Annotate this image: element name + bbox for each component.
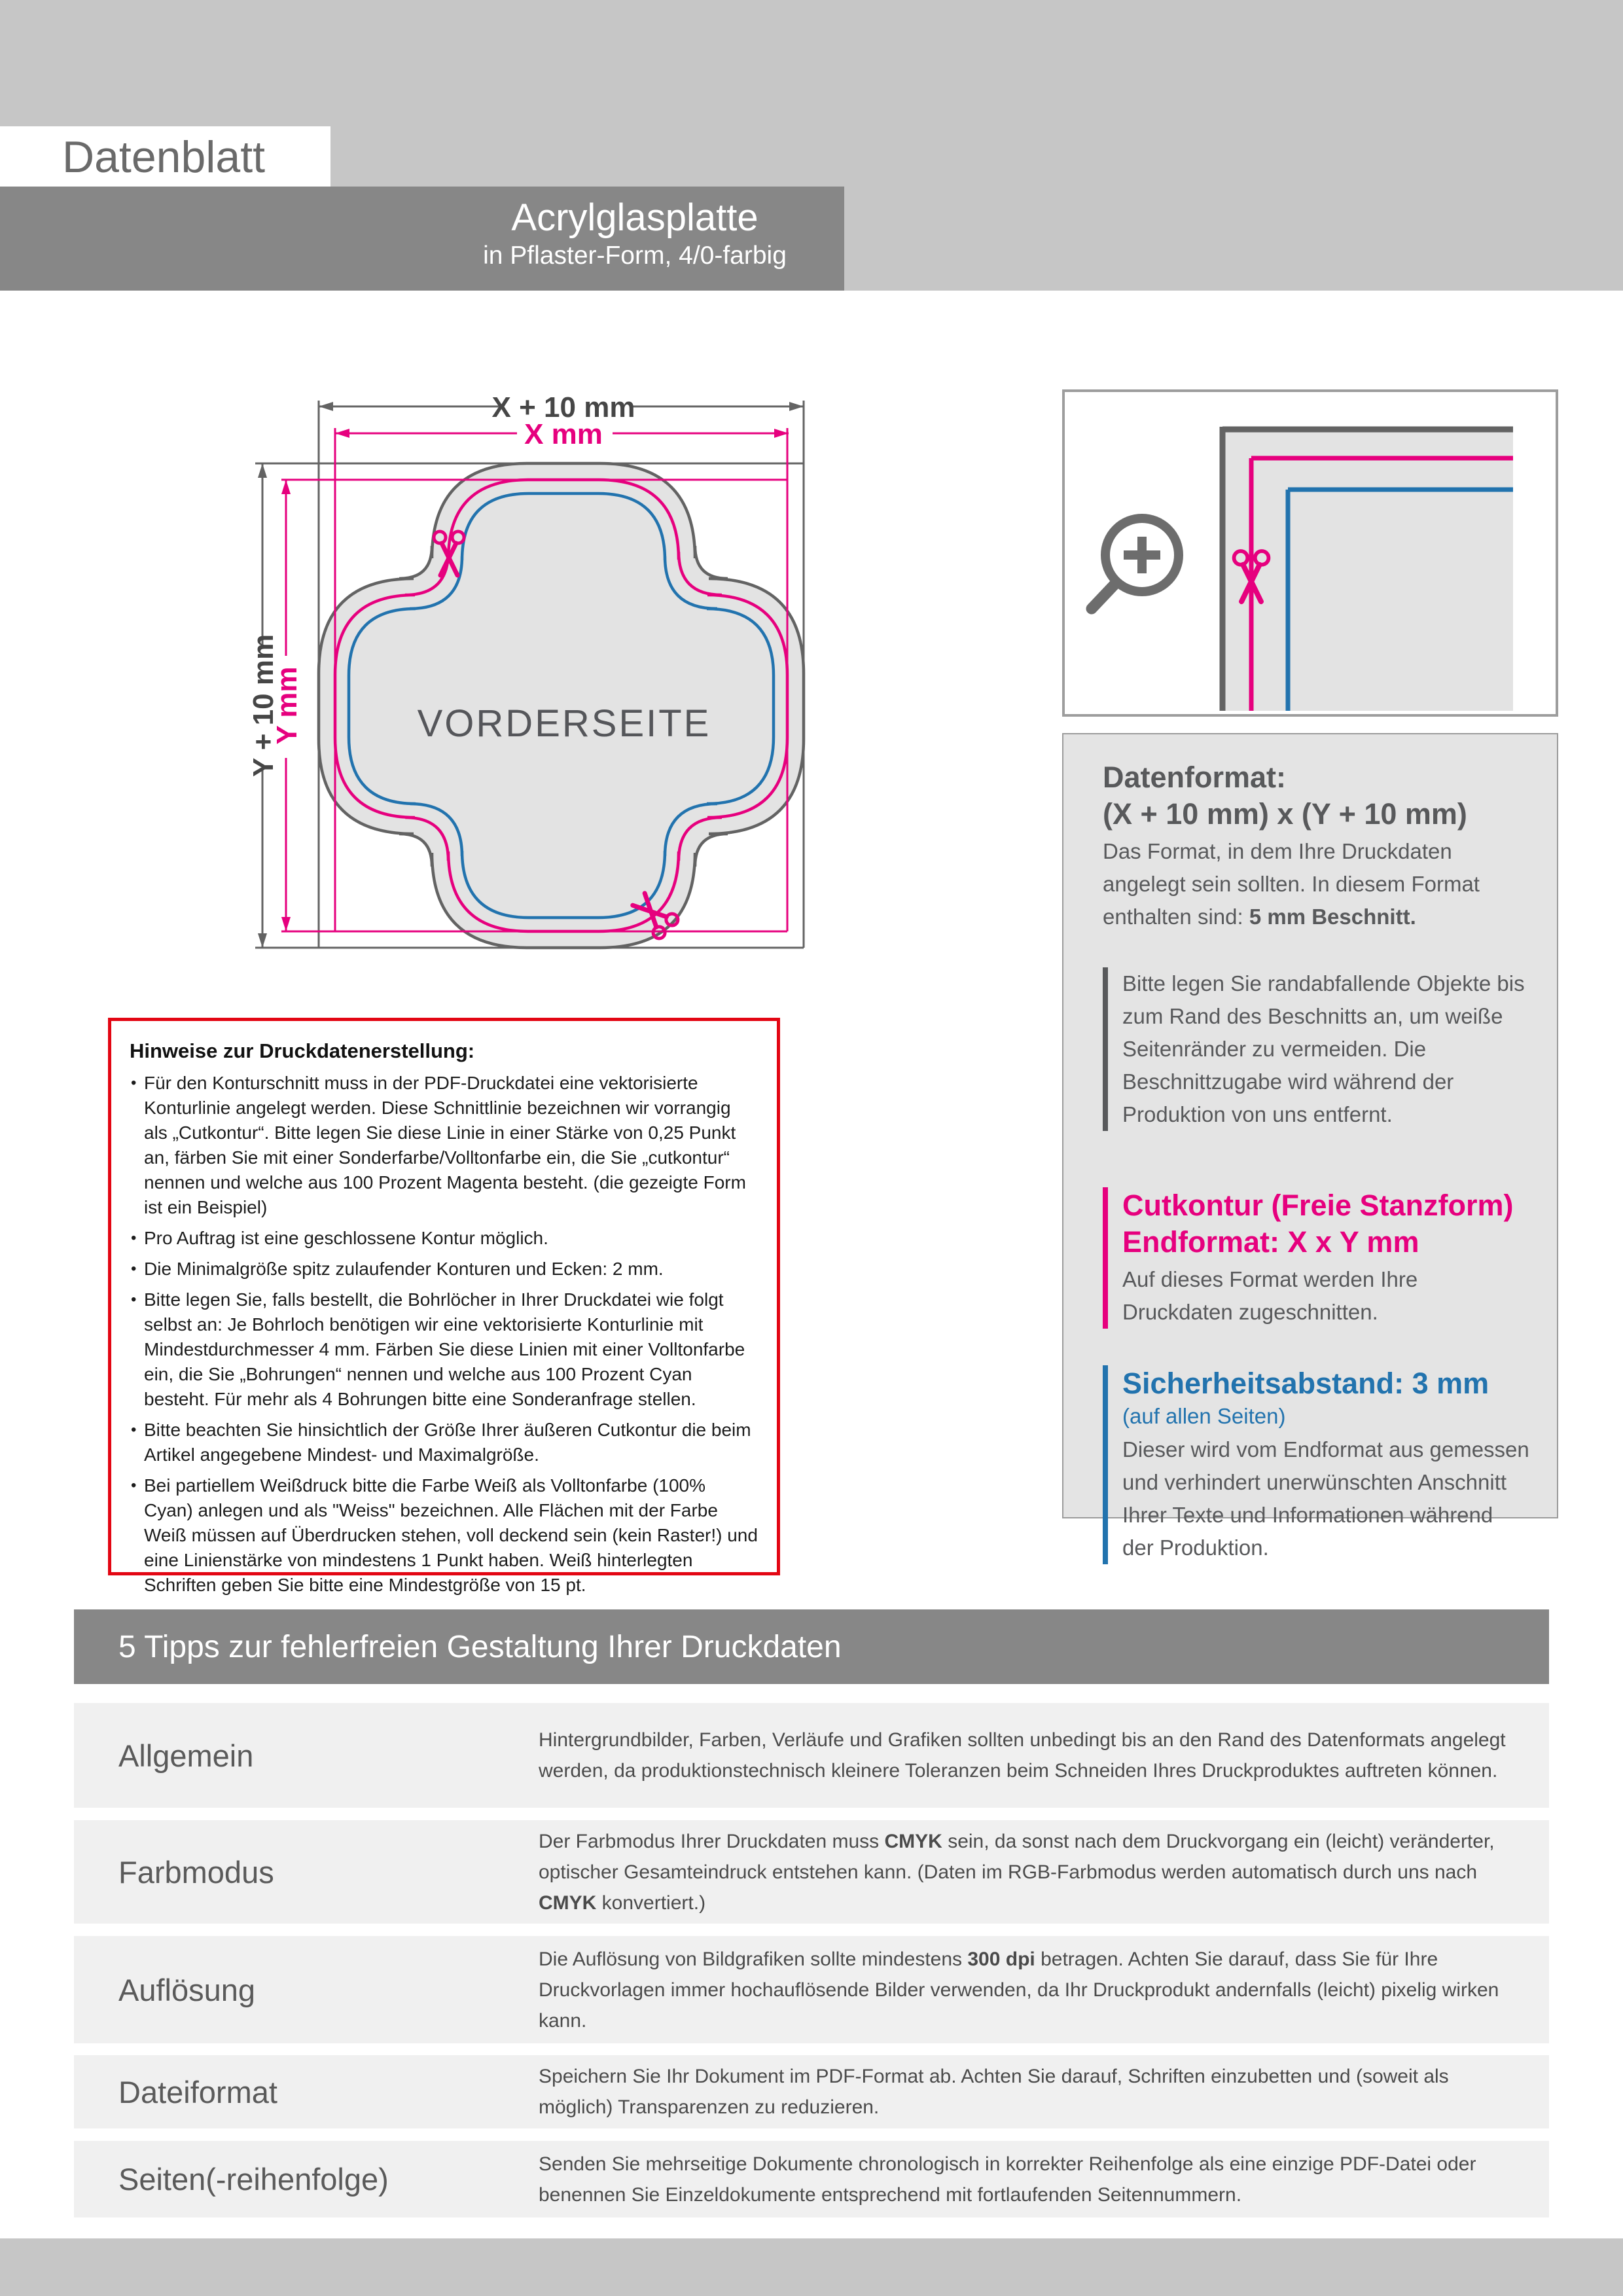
list-item: Bitte beachten Sie hinsichtlich der Größ…: [130, 1418, 758, 1467]
safety-text: Dieser wird vom Endformat aus gemessen u…: [1122, 1433, 1529, 1564]
safety-scope: (auf allen Seiten): [1122, 1402, 1529, 1431]
list-item: Bei partiellem Weißdruck bitte die Farbe…: [130, 1473, 758, 1598]
arrowhead: [258, 463, 267, 478]
tip-label: Allgemein: [74, 1738, 539, 1774]
tips-banner-title: 5 Tipps zur fehlerfreien Gestaltung Ihre…: [74, 1609, 1549, 1685]
print-data-notes-box: Hinweise zur Druckdatenerstellung: Für d…: [108, 1018, 780, 1575]
tip-label: Farbmodus: [74, 1854, 539, 1890]
list-item: Bitte legen Sie, falls bestellt, die Boh…: [130, 1287, 758, 1412]
dim-label-inner-width: X mm: [524, 418, 603, 450]
tip-row-allgemein: Allgemein Hintergrundbilder, Farben, Ver…: [74, 1703, 1549, 1808]
product-title-block: Acrylglasplatte in Pflaster-Form, 4/0-fa…: [425, 187, 844, 291]
datenformat-title: Datenformat:: [1103, 759, 1529, 796]
notes-title: Hinweise zur Druckdatenerstellung:: [130, 1038, 758, 1064]
tip-text: Der Farbmodus Ihrer Druckdaten muss CMYK…: [539, 1826, 1549, 1918]
tip-row-farbmodus: Farbmodus Der Farbmodus Ihrer Druckdaten…: [74, 1820, 1549, 1924]
datasheet-page: { "page": { "eyebrow": "Datenblatt", "ti…: [0, 0, 1623, 2296]
cutkontur-text: Auf dieses Format werden Ihre Druckdaten…: [1122, 1263, 1529, 1329]
page-title: Datenblatt: [0, 126, 330, 188]
bleed-detail-box: [1062, 389, 1558, 717]
list-item: Die Minimalgröße spitz zulaufender Kontu…: [130, 1257, 758, 1282]
dim-label-inner-height: Y mm: [271, 666, 303, 744]
datenformat-formula: (X + 10 mm) x (Y + 10 mm): [1103, 796, 1529, 833]
tip-text: Hintergrundbilder, Farben, Verläufe und …: [539, 1725, 1549, 1786]
magnifier-handle: [1092, 584, 1115, 609]
arrowhead: [789, 402, 804, 411]
datenformat-text: Das Format, in dem Ihre Druckdaten angel…: [1103, 835, 1529, 933]
safety-block: Sicherheitsabstand: 3 mm (auf allen Seit…: [1103, 1365, 1529, 1564]
arrowhead: [281, 917, 291, 931]
plus-icon: [1137, 537, 1147, 573]
cutkontur-block: Cutkontur (Freie Stanzform) Endformat: X…: [1103, 1187, 1529, 1329]
product-title-band: Acrylglasplatte in Pflaster-Form, 4/0-fa…: [0, 187, 844, 291]
magnifier-zoom-icon: [1092, 518, 1179, 609]
tip-row-aufloesung: Auflösung Die Auflösung von Bildgrafiken…: [74, 1936, 1549, 2043]
tip-text: Senden Sie mehrseitige Dokumente chronol…: [539, 2149, 1549, 2210]
list-item: Pro Auftrag ist eine geschlossene Kontur…: [130, 1226, 758, 1251]
tip-row-dateiformat: Dateiformat Speichern Sie Ihr Dokument i…: [74, 2055, 1549, 2128]
tip-text: Speichern Sie Ihr Dokument im PDF-Format…: [539, 2061, 1549, 2123]
corner-zoom-drawing: [1222, 427, 1513, 711]
safety-title: Sicherheitsabstand: 3 mm: [1122, 1365, 1529, 1402]
format-info-panel: Datenformat: (X + 10 mm) x (Y + 10 mm) D…: [1062, 733, 1558, 1518]
arrowhead: [319, 402, 333, 411]
front-side-label: VORDERSEITE: [418, 702, 711, 745]
arrowhead: [335, 429, 349, 438]
bleed-area-fill: [1225, 432, 1513, 711]
product-subtitle: in Pflaster-Form, 4/0-farbig: [425, 239, 844, 273]
tip-label: Seiten(-reihenfolge): [74, 2161, 539, 2197]
eyebrow-box: Datenblatt: [0, 126, 330, 187]
tips-banner: 5 Tipps zur fehlerfreien Gestaltung Ihre…: [74, 1609, 1549, 1684]
tip-label: Dateiformat: [74, 2074, 539, 2110]
bleed-note-block: Bitte legen Sie randabfallende Objekte b…: [1103, 967, 1529, 1131]
bleed-note-text: Bitte legen Sie randabfallende Objekte b…: [1122, 967, 1529, 1131]
footer-band: [0, 2238, 1623, 2296]
arrowhead: [258, 933, 267, 948]
tip-text: Die Auflösung von Bildgrafiken sollte mi…: [539, 1944, 1549, 2036]
tip-row-seitenreihenfolge: Seiten(-reihenfolge) Senden Sie mehrseit…: [74, 2141, 1549, 2217]
bleed-detail-illustration: [1062, 389, 1558, 717]
arrowhead: [281, 480, 291, 494]
list-item: Für den Konturschnitt muss in der PDF-Dr…: [130, 1071, 758, 1220]
product-title: Acrylglasplatte: [425, 197, 844, 239]
notes-list: Für den Konturschnitt muss in der PDF-Dr…: [130, 1071, 758, 1598]
print-layout-diagram: X + 10 mm X mm Y + 10 mm Y mm VORDERSEIT…: [236, 376, 838, 978]
cutkontur-title: Cutkontur (Freie Stanzform): [1122, 1187, 1529, 1224]
tip-label: Auflösung: [74, 1972, 539, 2008]
cutkontur-subtitle: Endformat: X x Y mm: [1122, 1224, 1529, 1261]
